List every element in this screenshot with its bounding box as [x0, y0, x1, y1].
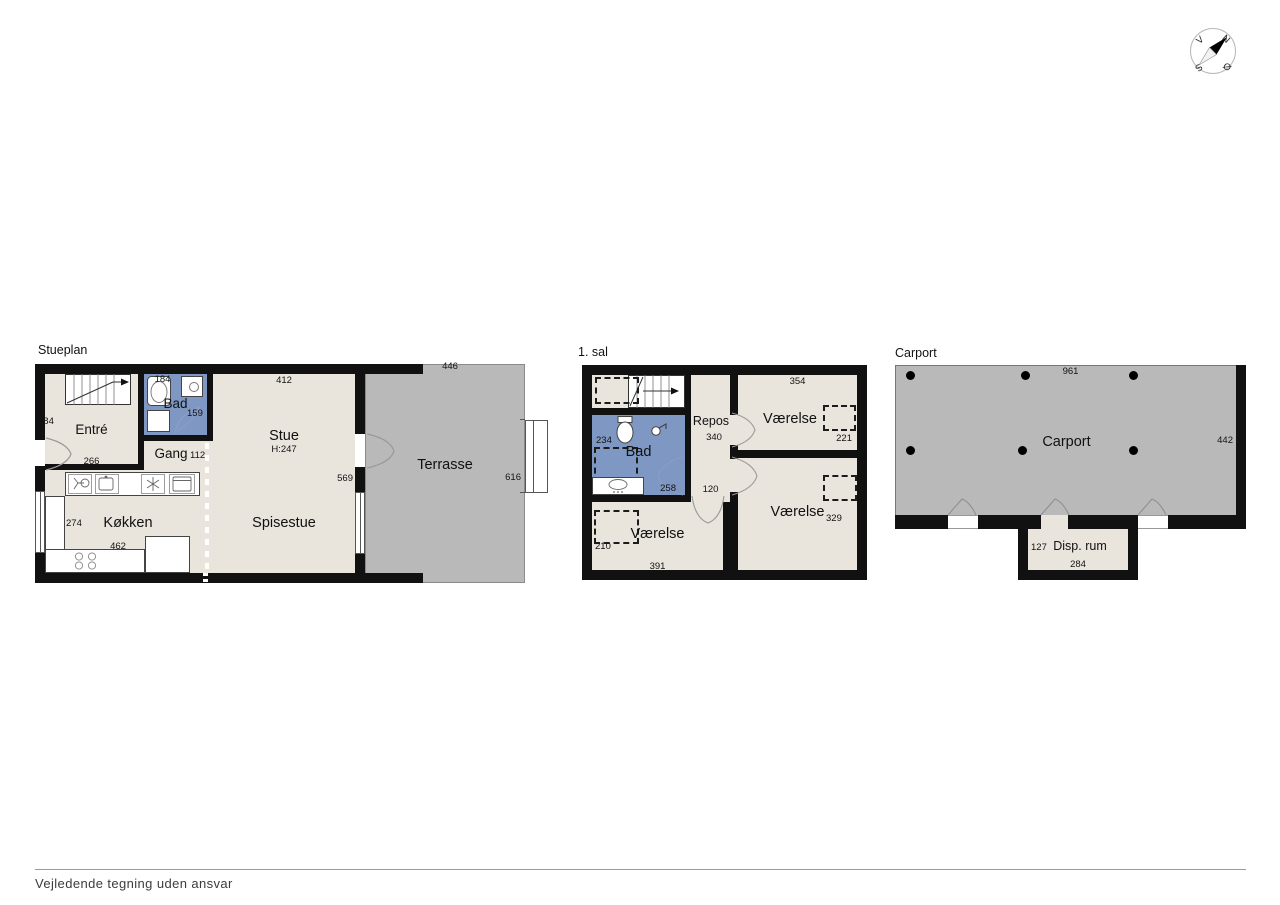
label-bad-1sal: Bad [592, 445, 685, 460]
first-floor-drawing: 234 Bad 258 Repos 340 120 354 Værelse 22… [582, 365, 867, 580]
label-repos: Repos [682, 415, 740, 428]
label-vaerelse-bl: Værelse [592, 527, 723, 542]
label-spisestue: Spisestue [213, 516, 355, 531]
footer-disclaimer: Vejledende tegning uden ansvar [35, 877, 233, 890]
skylight-stairs [595, 377, 639, 404]
entrance-door-opening [35, 440, 45, 466]
oven-icon [169, 474, 195, 494]
carport-bottom-wall-2 [978, 515, 1041, 529]
label-stue-height: H:247 [213, 445, 355, 455]
shower-icon [650, 421, 670, 437]
label-kokken: Køkken [83, 516, 173, 531]
carport-title: Carport [895, 347, 937, 360]
dim-entre-bottom: 266 [45, 457, 138, 467]
stueplan-drawing: 284 Entré 266 184 Bad 159 Gang 112 412 S… [35, 364, 527, 583]
dim-vaerelse-tr-top: 354 [738, 377, 857, 387]
carport-door-swing-2-icon [1041, 497, 1071, 515]
carport-drawing: 961 Carport 442 127 Disp. rum 284 [895, 365, 1246, 580]
label-disp-rum: Disp. rum [1035, 540, 1125, 553]
dim-repos-bottom: 120 [691, 485, 730, 495]
label-stue: Stue [213, 429, 355, 444]
carport-door-swing-3-icon [1138, 497, 1168, 515]
carport-bottom-wall-4 [1168, 515, 1246, 529]
kokken-window [35, 491, 45, 553]
dim-bad-door: 159 [187, 409, 203, 419]
floorplan-page: { "footer": { "disclaimer": "Vejledende … [0, 0, 1280, 905]
dim-stue-top: 412 [213, 376, 355, 386]
terrasse-door-opening [355, 434, 365, 467]
dim-disp-bottom: 284 [1028, 560, 1128, 570]
label-carport: Carport [895, 435, 1238, 450]
dashed-gap-bottom-wall [203, 573, 208, 583]
toilet-1sal-icon [615, 416, 635, 444]
staircase-icon [65, 374, 131, 405]
label-entre: Entré [45, 423, 138, 437]
dim-tick [520, 492, 525, 493]
disp-rum-door-opening [1041, 515, 1068, 529]
stove-icon [69, 551, 107, 571]
dim-tick [520, 419, 525, 420]
label-vaerelse-tr: Værelse [738, 412, 842, 427]
compass-west-label: V [1194, 34, 1207, 47]
dim-carport-right: 442 [1203, 436, 1233, 446]
terrasse-outside-step [525, 420, 548, 493]
kokken-counter-left [45, 496, 65, 554]
spisestue-window [355, 492, 365, 554]
stueplan-title: Stueplan [38, 344, 87, 357]
dim-kokken-bottom: 462 [83, 542, 153, 552]
dim-stue-right: 569 [325, 474, 353, 484]
first-floor-title: 1. sal [578, 346, 608, 359]
skylight-vaerelse-br [823, 475, 857, 501]
dim-vaerelse-bl-left: 210 [595, 542, 611, 552]
dim-vaerelse-tr-right: 221 [822, 434, 852, 444]
dim-carport-top: 961 [895, 367, 1246, 377]
sink-1sal-icon [592, 477, 644, 495]
compass-rose: V N S Ø [1181, 19, 1245, 83]
compass-south-label: S [1193, 62, 1205, 74]
carport-bottom-wall-3 [1068, 515, 1138, 529]
freezer-icon [141, 474, 165, 494]
carport-door-swing-1-icon [948, 497, 978, 515]
dim-bad-top: 184 [140, 375, 185, 385]
dim-vaerelse-br-right: 329 [826, 514, 854, 524]
label-terrasse: Terrasse [365, 458, 525, 473]
dim-kokken-left: 274 [66, 519, 82, 529]
footer-divider [35, 869, 1246, 870]
dishwasher-icon [68, 474, 92, 494]
dim-terrasse-top: 446 [365, 362, 535, 372]
dim-repos-mid: 340 [694, 433, 734, 443]
carport-opening-3 [1138, 515, 1168, 529]
dashed-opening-kokken-stue [205, 443, 209, 573]
dim-bad-bottom-1sal: 258 [640, 484, 676, 494]
dim-gang-right: 112 [190, 451, 205, 461]
carport-bottom-wall-1 [895, 515, 948, 529]
carport-opening-1 [948, 515, 978, 529]
kokken-sink-icon [95, 474, 119, 494]
toilet-icon [147, 410, 170, 432]
door-swing-br-icon [731, 457, 759, 495]
dim-terrasse-right: 616 [493, 473, 521, 483]
dim-vaerelse-bl-bottom: 391 [592, 562, 723, 572]
door-swing-bl-icon [690, 496, 726, 526]
